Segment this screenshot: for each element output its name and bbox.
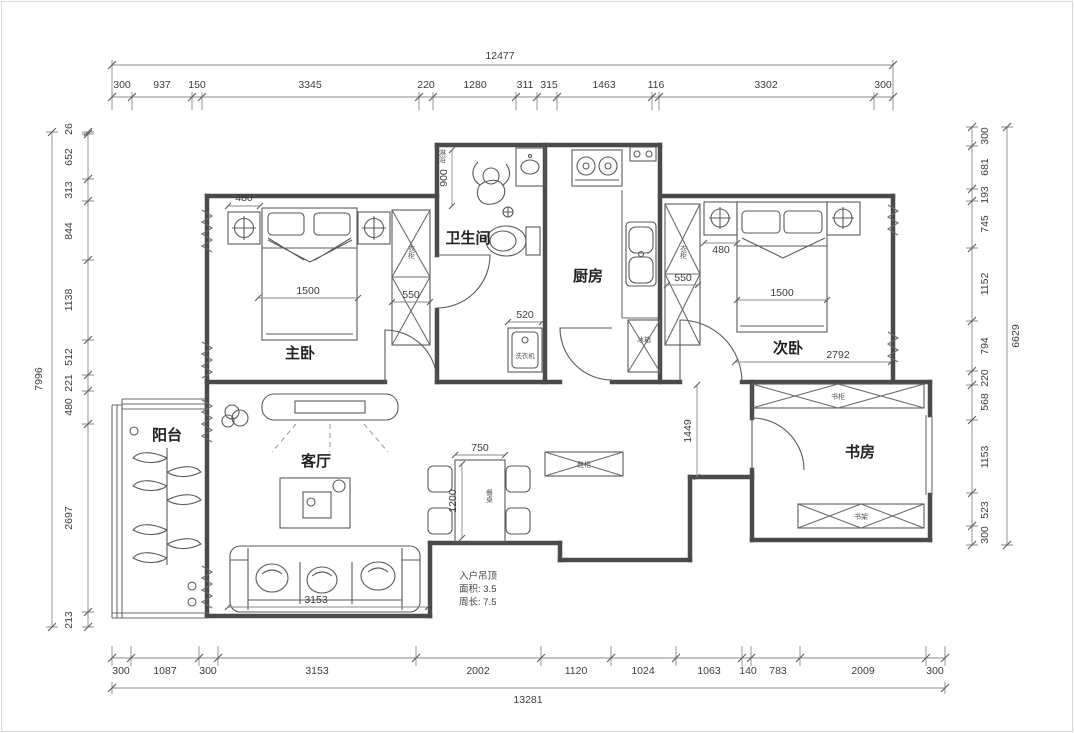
floor-plan-drawing: 12477 300 937 150 3345 220 1280 311 315 … (0, 0, 1074, 733)
dim-left-seg: 652 (63, 148, 75, 166)
dim-left-seg: 2697 (63, 506, 75, 530)
label-fridge: 冰箱 (637, 335, 651, 344)
dim-right-seg: 300 (979, 127, 991, 145)
dim-left-seg: 213 (63, 611, 75, 629)
dim-top-seg: 1280 (463, 79, 487, 91)
dim-master-wardrobe: 550 (402, 289, 420, 301)
label-bookcase-top: 书柜 (831, 392, 845, 401)
dim-right-seg: 1153 (979, 446, 991, 469)
room-label-master-bedroom: 主卧 (285, 344, 315, 362)
dim-top-seg: 3302 (754, 79, 778, 91)
dim-right-seg: 220 (979, 369, 991, 387)
dim-master-bed: 1500 (296, 285, 320, 297)
dim-bottom-seg: 2002 (466, 665, 490, 677)
dim-top-seg: 116 (648, 79, 665, 91)
dim-table-length: 1200 (447, 489, 459, 513)
entry-note-line3: 周长: 7.5 (459, 596, 497, 608)
room-label-balcony: 阳台 (152, 426, 182, 444)
dim-top-seg: 220 (417, 79, 435, 91)
dim-bottom-seg: 300 (112, 665, 130, 677)
dim-left-seg: 1138 (63, 289, 75, 312)
dim-right-seg: 794 (979, 337, 991, 355)
dim-bottom-seg: 1087 (153, 665, 177, 677)
dim-right-seg: 300 (979, 526, 991, 544)
label-shower: 淋浴 (439, 148, 447, 164)
dim-bottom-seg: 1063 (697, 665, 721, 677)
dim-bottom-seg: 140 (739, 665, 757, 677)
label-washer: 洗衣机 (515, 351, 535, 360)
entry-note-line2: 面积: 3.5 (459, 583, 497, 595)
dim-top-seg: 3345 (298, 79, 322, 91)
label-shoe-cabinet: 鞋柜 (577, 460, 591, 469)
entry-note: 入户吊顶 面积: 3.5 周长: 7.5 (459, 570, 498, 608)
room-label-living-room: 客厅 (300, 452, 331, 470)
dim-right-overall: 6629 (1010, 324, 1022, 348)
room-label-kitchen: 厨房 (573, 267, 603, 285)
dim-left-seg: 480 (63, 398, 75, 416)
room-label-bathroom: 卫生间 (445, 229, 490, 247)
dim-top-seg: 300 (113, 79, 131, 91)
dim-top-seg: 315 (540, 79, 558, 91)
dim-second-room: 2792 (826, 349, 850, 361)
dim-top-overall: 12477 (485, 50, 514, 62)
dim-bottom-overall: 13281 (513, 694, 542, 706)
dim-right-seg: 1152 (979, 273, 991, 296)
dim-bottom-seg: 300 (926, 665, 944, 677)
dim-bottom-seg: 783 (769, 665, 787, 677)
dim-second-nightstand: 480 (712, 244, 730, 256)
dim-bottom-seg: 300 (199, 665, 217, 677)
room-label-study: 书房 (845, 443, 875, 461)
dim-second-bed: 1500 (770, 287, 794, 299)
dim-right-seg: 193 (979, 186, 991, 204)
dim-bottom-seg: 2009 (851, 665, 875, 677)
dim-right-seg: 568 (979, 393, 991, 411)
dim-right-seg: 523 (979, 501, 991, 519)
floor-plan-canvas: 12477 300 937 150 3345 220 1280 311 315 … (0, 0, 1074, 733)
label-wardrobe-second: 衣柜 (680, 244, 688, 260)
dim-top-seg: 300 (874, 79, 892, 91)
dim-sofa-wall: 3153 (304, 594, 328, 606)
dim-hallway: 1449 (682, 419, 694, 443)
dim-left-seg: 221 (63, 374, 75, 392)
ceiling-fan-symbol (503, 207, 513, 217)
dim-right-seg: 681 (979, 158, 991, 176)
dim-top-seg: 311 (517, 79, 534, 91)
dim-top-seg: 937 (153, 79, 171, 91)
dim-bottom-seg: 1120 (565, 665, 588, 677)
dim-table-width: 750 (471, 442, 489, 454)
label-dining-table: 餐桌 (486, 488, 494, 504)
dim-washer: 520 (516, 309, 534, 321)
dim-top-seg: 150 (188, 79, 206, 91)
dim-right-seg: 745 (979, 215, 991, 233)
entry-note-line1: 入户吊顶 (459, 570, 498, 582)
dim-bottom-seg: 1024 (631, 665, 655, 677)
label-bookcase-bottom: 书架 (854, 512, 868, 521)
room-label-second-bedroom: 次卧 (773, 339, 803, 357)
dim-second-wardrobe: 550 (674, 272, 692, 284)
label-wardrobe-master: 衣柜 (408, 244, 416, 260)
dim-shower-depth: 900 (438, 169, 450, 187)
dim-master-nightstand: 480 (235, 192, 253, 204)
dim-left-seg: 26 (63, 123, 75, 135)
dim-left-seg: 313 (63, 181, 75, 199)
dim-top-seg: 1463 (592, 79, 616, 91)
dim-left-seg: 512 (63, 348, 75, 366)
dim-bottom-seg: 3153 (305, 665, 329, 677)
dim-left-overall: 7996 (33, 367, 45, 391)
dim-left-seg: 844 (63, 222, 75, 240)
